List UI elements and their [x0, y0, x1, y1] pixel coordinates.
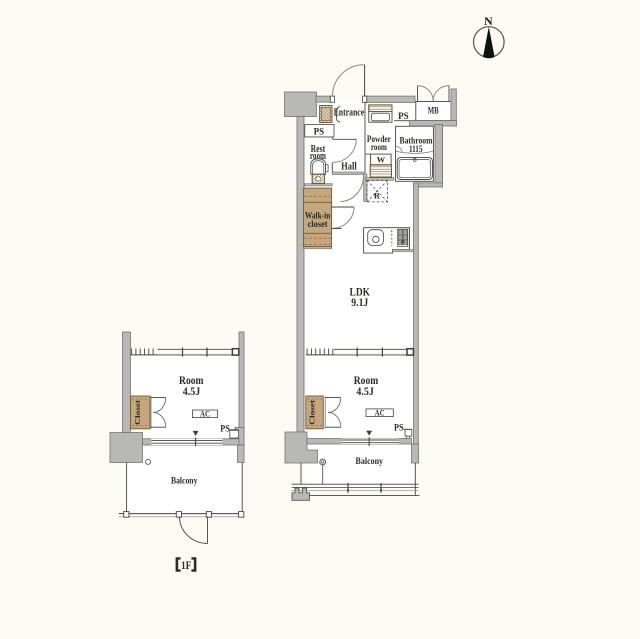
svg-text:R: R: [374, 191, 381, 201]
svg-text:4.5J: 4.5J: [183, 385, 201, 398]
svg-text:1115: 1115: [409, 144, 423, 154]
svg-text:Entrance: Entrance: [334, 108, 365, 119]
svg-text:room: room: [310, 151, 326, 162]
svg-text:room: room: [371, 142, 387, 153]
svg-text:N: N: [484, 14, 493, 28]
svg-text:PS: PS: [220, 423, 230, 433]
svg-text:Closet: Closet: [133, 399, 142, 425]
svg-text:AC: AC: [200, 409, 210, 418]
svg-text:1F: 1F: [181, 560, 192, 572]
svg-text:Balcony: Balcony: [356, 457, 384, 467]
svg-text:closet: closet: [308, 219, 328, 229]
svg-text:AC: AC: [375, 408, 385, 417]
svg-text:Balcony: Balcony: [171, 477, 198, 487]
svg-text:4.5J: 4.5J: [356, 385, 374, 398]
svg-text:Closet: Closet: [307, 399, 316, 425]
svg-text:Hall: Hall: [341, 162, 357, 173]
svg-text:9.1J: 9.1J: [351, 295, 368, 309]
svg-text:PS: PS: [398, 112, 409, 122]
svg-text:PS: PS: [314, 127, 325, 137]
svg-text:PS: PS: [394, 423, 404, 433]
svg-text:MB: MB: [428, 106, 439, 116]
svg-text:W: W: [377, 155, 386, 165]
